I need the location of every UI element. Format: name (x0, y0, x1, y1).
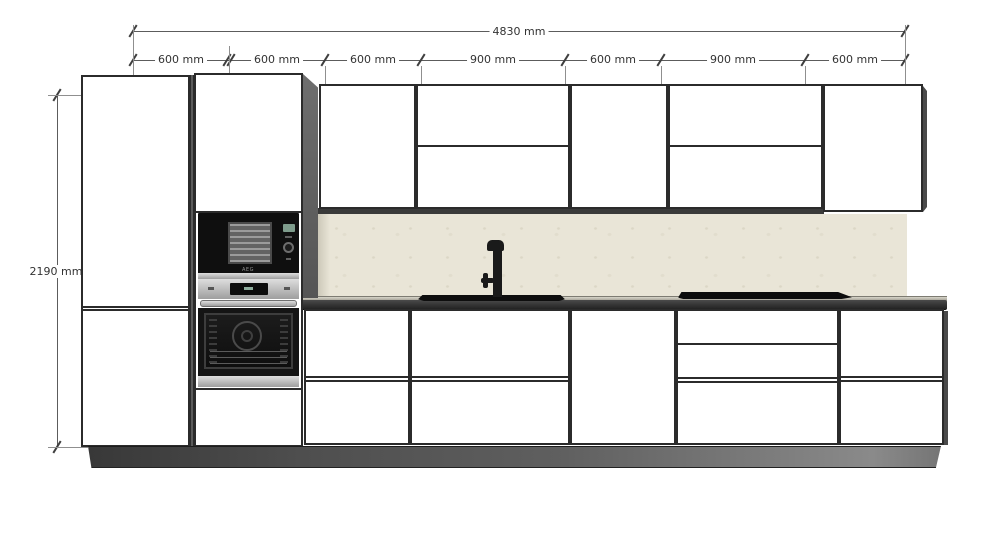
drawer-split (306, 376, 408, 382)
microwave-button (285, 236, 292, 238)
extension-line (661, 66, 662, 84)
faucet-handle-knob (483, 273, 488, 288)
extension-line (48, 95, 81, 96)
oven-racks (210, 351, 287, 365)
base-cabinet-1 (304, 309, 410, 445)
extension-line (565, 66, 566, 84)
wall-cabinet-5-side (923, 86, 927, 212)
microwave-display (283, 224, 295, 232)
tall-cabinet-left-door-split (83, 306, 188, 311)
door-split (196, 388, 301, 390)
oven-knob (208, 287, 214, 290)
base-cabinet-5 (839, 309, 944, 445)
wall-cabinet-2 (416, 84, 570, 209)
tall-cabinet-side-panel (303, 74, 318, 298)
oven-handle (200, 300, 297, 307)
oven-fan (232, 321, 262, 351)
microwave-button (286, 258, 291, 260)
wall-cabinet-3 (570, 84, 668, 209)
extension-line (133, 25, 134, 75)
dimension-label-segment-7: 600 mm (829, 53, 881, 66)
wall-cabinet-4 (668, 84, 823, 209)
dimension-label-height: 2190 mm (27, 265, 86, 278)
wall-cabinet-1 (319, 84, 416, 209)
plinth (88, 446, 941, 468)
microwave-window (228, 222, 272, 264)
extension-line (805, 66, 806, 84)
door-split (670, 145, 821, 147)
dimension-label-segment-2: 600 mm (251, 53, 303, 66)
oven-fan-hub (241, 330, 253, 342)
base-cabinet-3 (570, 309, 676, 445)
oven-control-panel (198, 279, 299, 299)
kitchen-elevation-drawing: 4830 mm 600 mm 600 mm 600 mm 900 mm 600 … (0, 0, 1000, 547)
oven-rack-rail (209, 319, 217, 365)
extension-line (325, 66, 326, 84)
oven-bottom-trim (198, 376, 299, 387)
drawer-split (412, 376, 568, 382)
oven-display-digits (244, 287, 253, 290)
oven-display (230, 283, 268, 295)
oven-knob (284, 287, 290, 290)
dimension-label-segment-4: 900 mm (467, 53, 519, 66)
dimension-label-segment-5: 600 mm (587, 53, 639, 66)
extension-line (229, 46, 230, 73)
door-split (418, 145, 568, 147)
dimension-line-segments (133, 60, 905, 61)
dimension-label-segment-1: 600 mm (155, 53, 207, 66)
tall-cabinet-oven-column: AEG (194, 73, 303, 447)
tall-cabinet-left (81, 75, 190, 447)
faucet-column (493, 244, 502, 297)
backsplash (318, 214, 907, 298)
dimension-label-segment-6: 900 mm (707, 53, 759, 66)
drawer-split (841, 376, 942, 382)
oven-rack-rail (280, 319, 288, 365)
sink (418, 295, 565, 301)
oven-glass (204, 313, 293, 369)
microwave-dial (283, 242, 294, 253)
base-cabinet-cooktop (676, 309, 839, 445)
cooktop (678, 292, 852, 299)
wall-cabinet-5 (823, 84, 923, 212)
drawer-split (678, 343, 837, 345)
extension-line (905, 25, 906, 84)
oven-door (198, 308, 299, 376)
base-cabinet-sink (410, 309, 570, 445)
drawer-split (678, 377, 837, 383)
microwave: AEG (198, 213, 299, 279)
extension-line (48, 447, 88, 448)
dimension-label-total: 4830 mm (490, 25, 549, 38)
dimension-label-segment-3: 600 mm (347, 53, 399, 66)
extension-line (421, 66, 422, 84)
base-cabinet-5-side (944, 311, 948, 445)
